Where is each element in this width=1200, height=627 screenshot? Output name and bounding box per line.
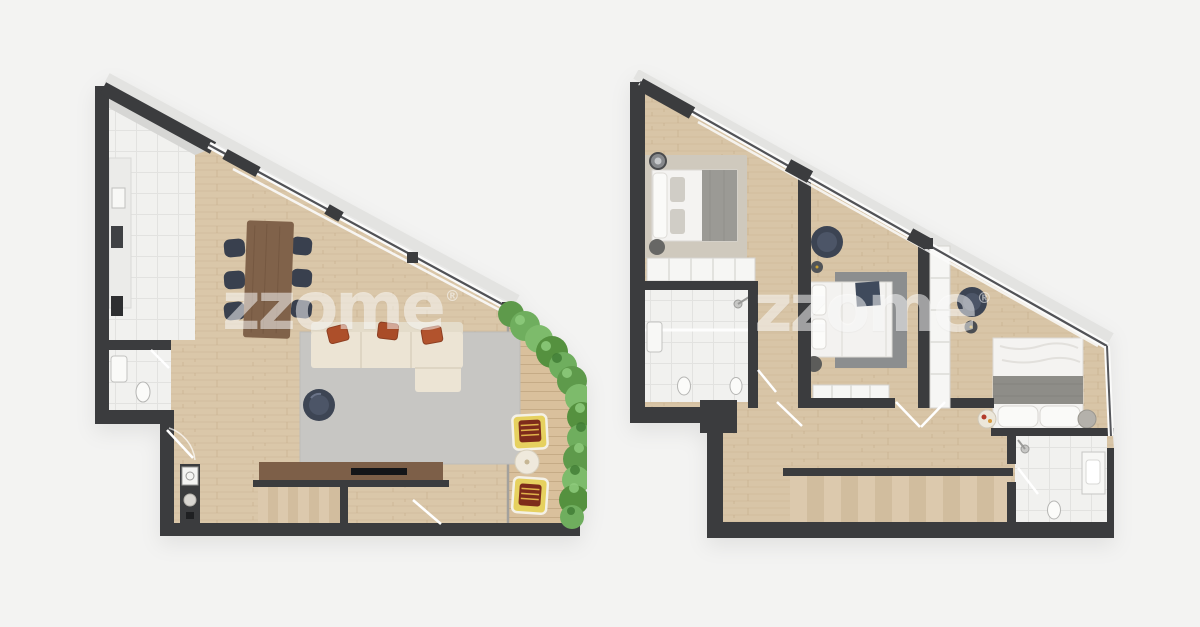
wall-bedroom1-2 bbox=[798, 170, 811, 408]
vanity-mirror bbox=[650, 153, 666, 169]
lounge-chair-1 bbox=[512, 414, 548, 450]
oven bbox=[111, 296, 123, 316]
entry-utility bbox=[180, 464, 200, 523]
washing-machine bbox=[182, 467, 198, 485]
wall-bathroom-bottom bbox=[630, 407, 707, 423]
wall-step-jog bbox=[923, 238, 933, 249]
terrace-table-dot bbox=[525, 460, 530, 465]
stair-side-wall bbox=[340, 487, 348, 523]
tv bbox=[351, 468, 407, 475]
wall-kitchen-wc bbox=[95, 340, 171, 350]
stair-stringer bbox=[253, 480, 449, 487]
staircase-down bbox=[258, 487, 340, 523]
upper-floor-plan: zzome® bbox=[630, 70, 1116, 540]
bathroom-toilet bbox=[678, 377, 691, 395]
lower-floor-svg bbox=[95, 68, 587, 538]
bedroom1-bed bbox=[652, 170, 737, 241]
wall-hallway-a bbox=[811, 398, 895, 408]
bedroom1-wardrobe bbox=[647, 258, 755, 281]
wall-bathroom-right bbox=[748, 290, 758, 408]
wc-sink bbox=[111, 356, 127, 382]
wall-left bbox=[95, 86, 109, 422]
side-table-dot-2 bbox=[970, 326, 973, 329]
wall-pier-2 bbox=[327, 209, 341, 217]
wc-toilet bbox=[136, 382, 150, 402]
wall-ensuite-b bbox=[1007, 482, 1016, 522]
kitchen-sink bbox=[112, 188, 125, 208]
wall-bottom bbox=[160, 523, 580, 536]
lower-floor-plan: zzome® bbox=[95, 68, 587, 538]
wall-bottom bbox=[707, 522, 1114, 538]
bedroom2-armchair bbox=[811, 226, 843, 258]
side-table-dot bbox=[816, 266, 819, 269]
bedroom1-pouf bbox=[649, 239, 665, 255]
wall-bedroom2-3 bbox=[918, 242, 930, 408]
wall-bathroom-top bbox=[645, 281, 758, 290]
upper-floor-svg bbox=[630, 70, 1116, 540]
bathroom-bidet bbox=[730, 378, 742, 395]
stair-stringer bbox=[783, 468, 1013, 476]
bedroom2-bed bbox=[810, 281, 892, 357]
floorplan-render: zzome® bbox=[0, 0, 1200, 627]
lounge-chair-2 bbox=[512, 477, 548, 514]
wall-ensuite-a bbox=[1007, 436, 1016, 464]
bedroom3-armchair bbox=[957, 287, 987, 317]
wall-right bbox=[1107, 448, 1114, 538]
wall-corner-block bbox=[700, 400, 737, 433]
staircase-down bbox=[790, 476, 1011, 522]
cooktop bbox=[111, 226, 123, 248]
ensuite-vanity bbox=[1082, 452, 1105, 494]
wall-left bbox=[630, 82, 645, 412]
bedroom2-wardrobe bbox=[813, 385, 889, 399]
bathroom-sink bbox=[647, 322, 662, 352]
dining-table bbox=[243, 220, 294, 339]
wall-bedroom3-headboard bbox=[991, 428, 1114, 436]
wall-step-jog bbox=[407, 252, 418, 263]
bedroom3-bed bbox=[993, 338, 1083, 430]
nightstand-left bbox=[978, 410, 996, 428]
ensuite-toilet bbox=[1048, 501, 1061, 519]
swivel-armchair bbox=[303, 389, 335, 421]
hallway-wardrobe bbox=[930, 246, 950, 408]
nightstand-right bbox=[1078, 410, 1096, 428]
